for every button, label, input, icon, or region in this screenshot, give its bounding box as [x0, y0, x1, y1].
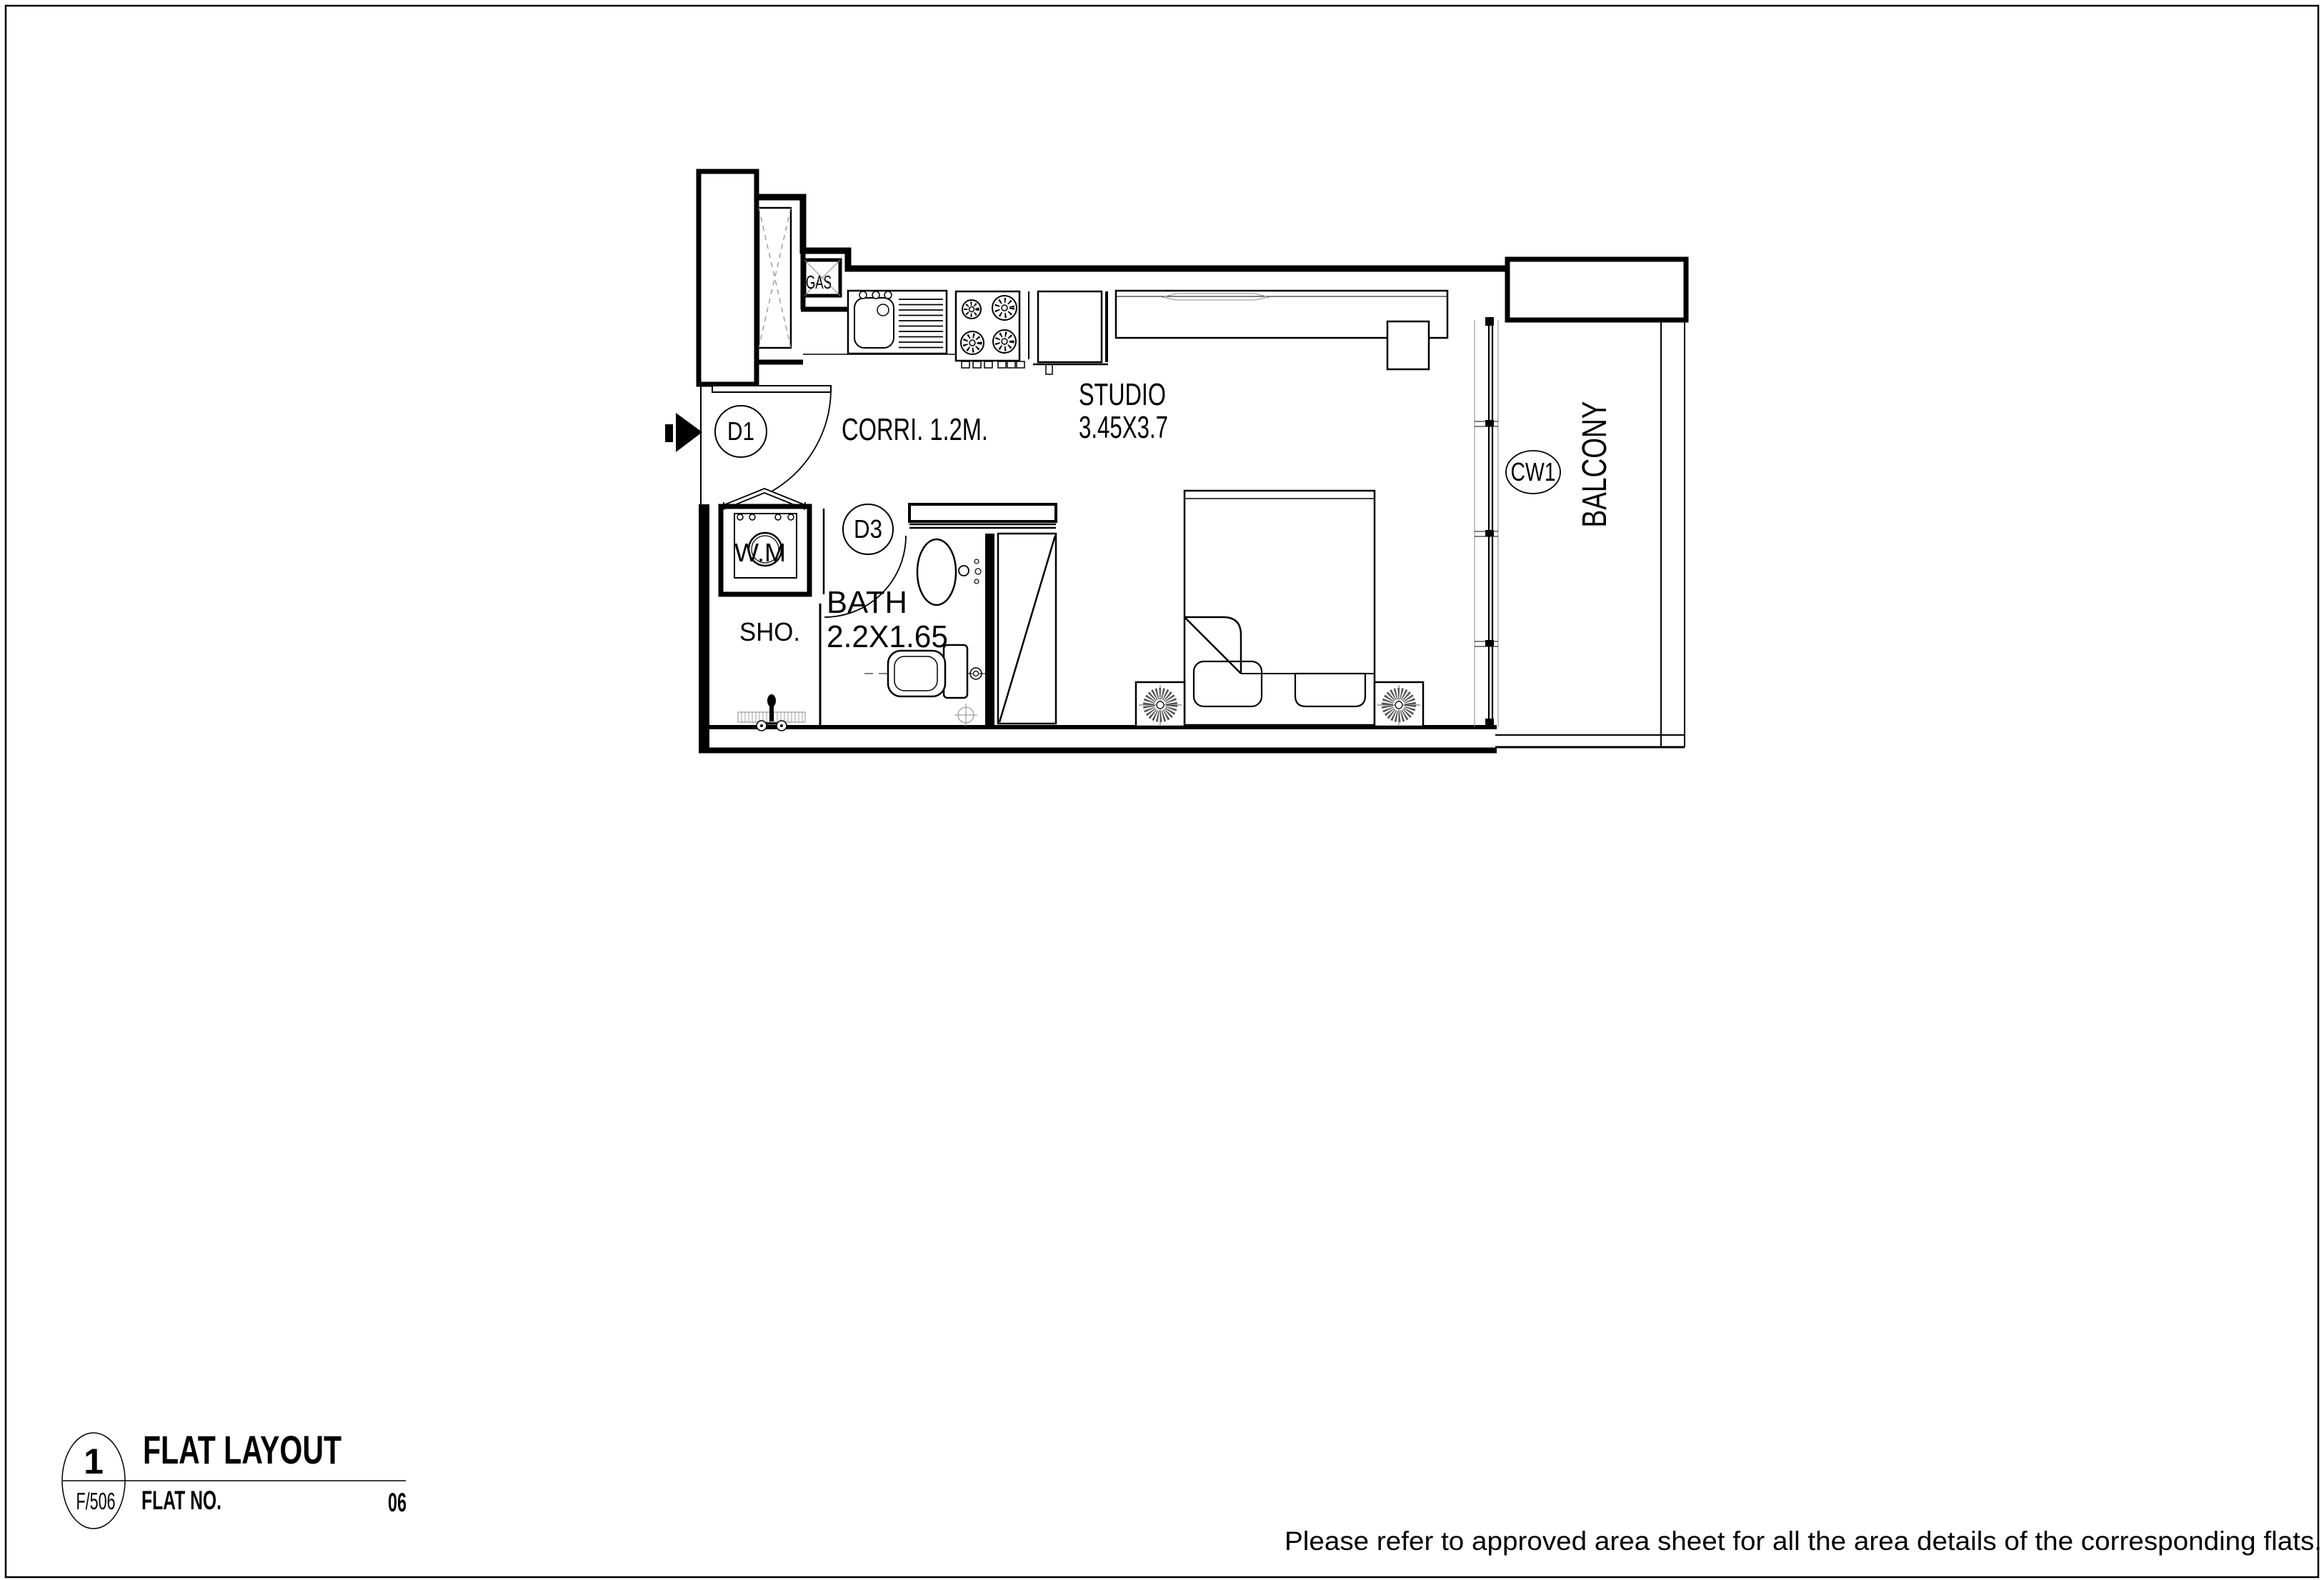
wm-label: W.M	[734, 538, 786, 567]
bath-label: BATH	[827, 585, 907, 620]
bed	[1185, 491, 1375, 725]
detail-sheet-ref: F/506	[76, 1488, 116, 1514]
shower-label: SHO.	[739, 617, 800, 646]
flat-no-value: 06	[388, 1488, 407, 1517]
d3-tag: D3	[843, 504, 893, 554]
studio-dim: 3.45X3.7	[1079, 410, 1168, 445]
footer-note: Please refer to approved area sheet for …	[1285, 1526, 2322, 1556]
detail-number: 1	[84, 1441, 104, 1481]
balcony-label: BALCONY	[1576, 401, 1614, 528]
drawing-sheet: GAS D1 W.M SHO.	[0, 0, 2324, 1580]
studio-label: STUDIO	[1079, 377, 1166, 412]
duct-shaft	[759, 208, 791, 348]
gas-label: GAS	[806, 271, 832, 293]
sheet-border	[6, 6, 2318, 1577]
washing-machine-closet: W.M	[721, 489, 809, 594]
d1-swing-arc	[772, 392, 831, 491]
bath-top-wall	[909, 504, 1056, 521]
cw1-tag: CW1	[1506, 451, 1560, 494]
closet-shaft	[998, 534, 1056, 724]
balcony-railing	[1495, 320, 1685, 747]
bath-dim: 2.2X1.65	[827, 619, 948, 654]
floor-drain-icon	[954, 704, 977, 726]
top-wall	[757, 197, 1507, 269]
bath-top-wall-lines	[909, 524, 1056, 528]
bathroom: D3 BATH 2.2X1.65	[824, 504, 992, 726]
curtain-wall-glazing	[1475, 317, 1498, 727]
d1-tag: D1	[715, 406, 767, 457]
fridge-unit	[1033, 291, 1108, 374]
drawing-title: FLAT LAYOUT	[143, 1427, 341, 1472]
kitchen-counter	[803, 291, 1108, 374]
entry-arrow-icon	[665, 413, 702, 452]
title-block: 1 F/506 FLAT LAYOUT FLAT NO. 06	[62, 1427, 407, 1529]
bedside-table-left	[1136, 682, 1185, 726]
pillar-wall	[699, 171, 757, 384]
kitchen-sink-icon	[848, 291, 947, 354]
d1-tag-label: D1	[727, 416, 754, 446]
balcony-top-wall	[1507, 259, 1686, 320]
flat-layout-drawing: GAS D1 W.M SHO.	[0, 0, 2324, 1580]
stove-icon	[956, 291, 1024, 368]
d3-tag-label: D3	[854, 514, 882, 544]
shower-room: SHO.	[738, 617, 805, 731]
wall-unit	[1387, 321, 1429, 369]
washbasin-icon	[917, 539, 981, 605]
bedside-table-right	[1375, 682, 1423, 726]
corridor-label: CORRI. 1.2M.	[842, 412, 988, 447]
balcony: CW1 BALCONY	[1475, 317, 1685, 747]
gas-meter-box: GAS	[804, 260, 840, 296]
flat-no-label: FLAT NO.	[141, 1486, 221, 1515]
cw1-tag-label: CW1	[1511, 457, 1556, 486]
d1-leaf	[712, 386, 831, 392]
